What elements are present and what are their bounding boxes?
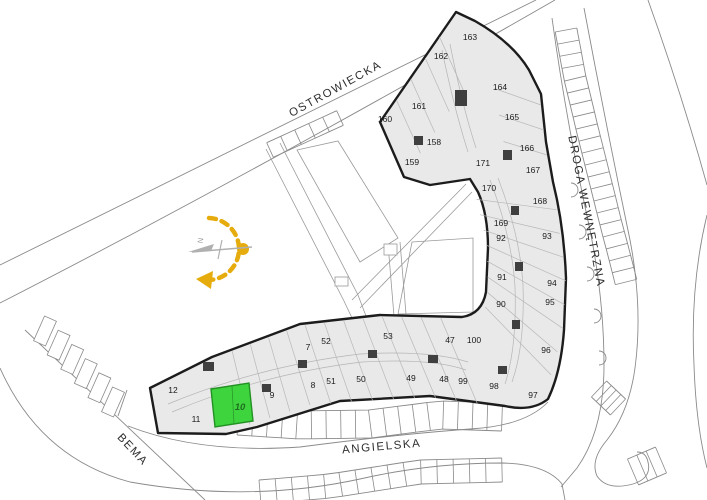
unit-label-53[interactable]: 53 — [383, 331, 393, 341]
street-label-ostrowiecka: OSTROWIECKA — [287, 59, 384, 120]
unit-label-96[interactable]: 96 — [541, 345, 551, 355]
unit-label-170[interactable]: 170 — [482, 183, 496, 193]
unit-label-9[interactable]: 9 — [270, 390, 275, 400]
compass: N — [188, 218, 252, 289]
unit-label-99[interactable]: 99 — [458, 376, 468, 386]
unit-label-164[interactable]: 164 — [493, 82, 507, 92]
unit-label-168[interactable]: 168 — [533, 196, 547, 206]
unit-label-8[interactable]: 8 — [311, 380, 316, 390]
unit-label-12[interactable]: 12 — [168, 385, 178, 395]
unit-label-167[interactable]: 167 — [526, 165, 540, 175]
unit-label-11[interactable]: 11 — [192, 414, 201, 424]
unit-label-10[interactable]: 10 — [235, 402, 246, 413]
unit-label-159[interactable]: 159 — [405, 157, 419, 167]
unit-label-163[interactable]: 163 — [463, 32, 477, 42]
sun-path-arrowhead — [196, 271, 213, 289]
unit-label-51[interactable]: 51 — [326, 376, 336, 386]
unit-label-97[interactable]: 97 — [528, 390, 538, 400]
parking-layer — [34, 28, 667, 500]
unit-label-92[interactable]: 92 — [496, 233, 506, 243]
sun-position-dot — [237, 243, 249, 255]
unit-label-7[interactable]: 7 — [306, 342, 311, 352]
unit-label-95[interactable]: 95 — [545, 297, 555, 307]
unit-label-98[interactable]: 98 — [489, 381, 499, 391]
unit-label-91[interactable]: 91 — [497, 272, 507, 282]
unit-label-169[interactable]: 169 — [494, 218, 508, 228]
unit-label-166[interactable]: 166 — [520, 143, 534, 153]
site-plan: 1601611621631581591641651661711671701681… — [0, 0, 707, 500]
unit-label-49[interactable]: 49 — [406, 373, 416, 383]
unit-label-160[interactable]: 160 — [378, 114, 392, 124]
unit-label-52[interactable]: 52 — [321, 336, 331, 346]
street-label-bema: BEMA — [115, 432, 150, 469]
unit-label-90[interactable]: 90 — [496, 299, 506, 309]
unit-label-162[interactable]: 162 — [434, 51, 448, 61]
unit-label-50[interactable]: 50 — [356, 374, 366, 384]
unit-label-165[interactable]: 165 — [505, 112, 519, 122]
north-arrow-head — [188, 244, 214, 252]
site-plan-svg: 1601611621631581591641651661711671701681… — [0, 0, 707, 500]
unit-label-100[interactable]: 100 — [467, 335, 481, 345]
unit-label-48[interactable]: 48 — [439, 374, 449, 384]
unit-label-93[interactable]: 93 — [542, 231, 552, 241]
unit-label-171[interactable]: 171 — [476, 158, 490, 168]
street-label-droga-wewn-trzna: DROGA WEWNĘTRZNA — [565, 135, 606, 288]
north-label: N — [196, 237, 206, 244]
unit-label-94[interactable]: 94 — [547, 278, 557, 288]
unit-label-47[interactable]: 47 — [445, 335, 455, 345]
unit-label-158[interactable]: 158 — [427, 137, 441, 147]
unit-label-161[interactable]: 161 — [412, 101, 426, 111]
